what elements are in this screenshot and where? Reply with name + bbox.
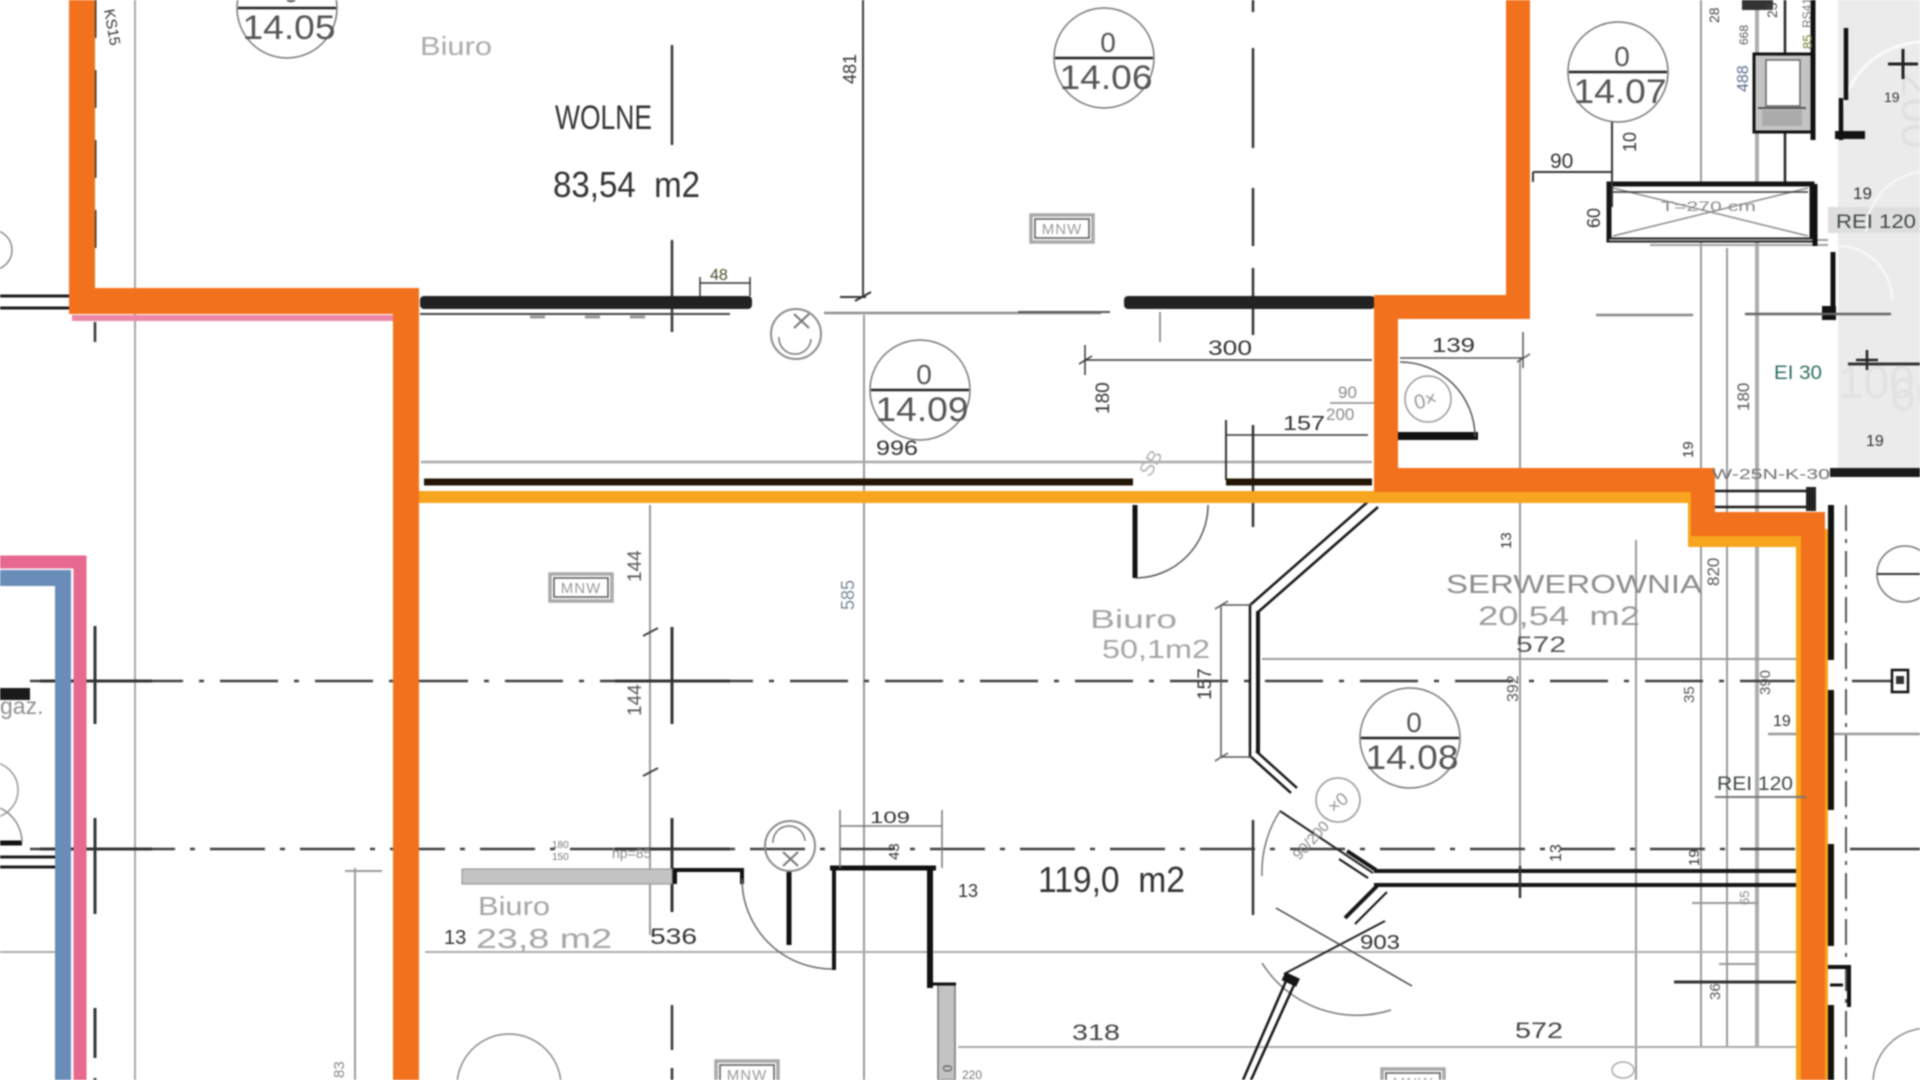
svg-text:200: 200 xyxy=(1326,405,1354,424)
svg-text:Biuro: Biuro xyxy=(478,891,550,921)
svg-text:157: 157 xyxy=(1195,668,1216,700)
svg-text:0: 0 xyxy=(916,359,932,390)
svg-text:25: 25 xyxy=(1764,2,1780,18)
svg-text:90: 90 xyxy=(1550,150,1573,173)
svg-text:585: 585 xyxy=(838,580,858,610)
svg-text:gaz.: gaz. xyxy=(0,693,43,719)
svg-text:Biuro: Biuro xyxy=(420,31,492,61)
svg-text:200: 200 xyxy=(1892,72,1920,149)
svg-text:35: 35 xyxy=(1681,686,1698,703)
svg-text:36: 36 xyxy=(1707,983,1724,1000)
svg-text:83: 83 xyxy=(331,1061,348,1078)
svg-text:0: 0 xyxy=(1100,27,1116,58)
svg-text:hp=85: hp=85 xyxy=(612,845,652,861)
svg-text:180: 180 xyxy=(1093,382,1114,414)
svg-text:REI 120: REI 120 xyxy=(1836,212,1916,233)
svg-text:144: 144 xyxy=(625,550,646,582)
svg-text:REI 120: REI 120 xyxy=(1717,774,1793,795)
svg-text:85: 85 xyxy=(1800,35,1815,49)
svg-text:180: 180 xyxy=(1734,383,1753,411)
svg-text:83,54 m2: 83,54 m2 xyxy=(553,164,700,205)
svg-text:19: 19 xyxy=(1884,89,1900,105)
svg-text:390: 390 xyxy=(1757,670,1774,695)
svg-text:90: 90 xyxy=(1338,383,1357,402)
svg-text:50,1m2: 50,1m2 xyxy=(1102,634,1210,664)
svg-text:SERWEROWNIA: SERWEROWNIA xyxy=(1446,569,1703,599)
svg-text:43: 43 xyxy=(886,843,903,860)
svg-text:668: 668 xyxy=(1737,25,1751,45)
svg-text:W-25N-K-30: W-25N-K-30 xyxy=(1712,466,1830,483)
svg-text:RS41: RS41 xyxy=(1800,0,1814,28)
svg-text:MNW: MNW xyxy=(1042,221,1083,238)
svg-text:0: 0 xyxy=(283,0,299,8)
svg-text:20,54 m2: 20,54 m2 xyxy=(1478,601,1640,631)
svg-text:19: 19 xyxy=(1853,184,1872,203)
svg-text:220: 220 xyxy=(962,1068,982,1080)
svg-text:119,0 m2: 119,0 m2 xyxy=(1038,859,1185,900)
svg-text:488: 488 xyxy=(1735,65,1752,92)
svg-text:157: 157 xyxy=(1283,413,1325,435)
svg-text:T=270 cm: T=270 cm xyxy=(1661,198,1756,214)
svg-text:0: 0 xyxy=(940,1065,955,1072)
svg-text:481: 481 xyxy=(840,54,860,84)
svg-text:65: 65 xyxy=(1737,891,1752,905)
svg-text:14.06: 14.06 xyxy=(1060,59,1153,97)
svg-text:13: 13 xyxy=(1498,532,1515,549)
svg-text:392: 392 xyxy=(1505,675,1522,702)
svg-text:572: 572 xyxy=(1515,1018,1563,1043)
svg-text:300: 300 xyxy=(1208,337,1252,360)
svg-text:14.05: 14.05 xyxy=(243,9,336,47)
svg-text:MNW: MNW xyxy=(561,580,602,597)
svg-text:23,8 m2: 23,8 m2 xyxy=(476,923,612,954)
svg-text:28: 28 xyxy=(1706,7,1722,23)
svg-text:48: 48 xyxy=(710,267,728,284)
svg-text:19: 19 xyxy=(1773,713,1791,730)
svg-text:14.08: 14.08 xyxy=(1366,739,1459,777)
svg-text:19: 19 xyxy=(1686,849,1703,866)
svg-text:109: 109 xyxy=(870,808,910,827)
svg-text:EI 30: EI 30 xyxy=(1774,363,1822,384)
svg-text:13: 13 xyxy=(1548,844,1565,862)
svg-text:903: 903 xyxy=(1360,932,1400,954)
svg-text:572: 572 xyxy=(1516,632,1566,657)
svg-text:144: 144 xyxy=(625,684,646,716)
svg-text:19: 19 xyxy=(1866,433,1884,450)
svg-text:150: 150 xyxy=(552,852,569,863)
svg-text:996: 996 xyxy=(876,437,918,460)
svg-text:14.07: 14.07 xyxy=(1574,73,1667,111)
svg-text:60: 60 xyxy=(1584,208,1604,228)
svg-text:180: 180 xyxy=(552,840,569,851)
svg-text:60: 60 xyxy=(1890,368,1920,420)
svg-text:10: 10 xyxy=(1620,132,1640,152)
svg-text:Biuro: Biuro xyxy=(1090,604,1177,634)
svg-text:139: 139 xyxy=(1432,335,1475,357)
svg-text:MNW: MNW xyxy=(727,1067,768,1080)
svg-text:0: 0 xyxy=(1406,707,1422,738)
svg-text:318: 318 xyxy=(1072,1020,1120,1045)
svg-text:19: 19 xyxy=(1680,441,1697,458)
svg-text:WOLNE: WOLNE xyxy=(555,99,652,137)
svg-text:MNW: MNW xyxy=(1393,1075,1434,1080)
svg-text:0: 0 xyxy=(1614,41,1630,72)
svg-text:536: 536 xyxy=(650,924,697,949)
svg-text:820: 820 xyxy=(1704,558,1723,586)
svg-text:14.09: 14.09 xyxy=(876,391,969,429)
svg-text:13: 13 xyxy=(444,927,466,949)
svg-text:13: 13 xyxy=(958,881,978,901)
